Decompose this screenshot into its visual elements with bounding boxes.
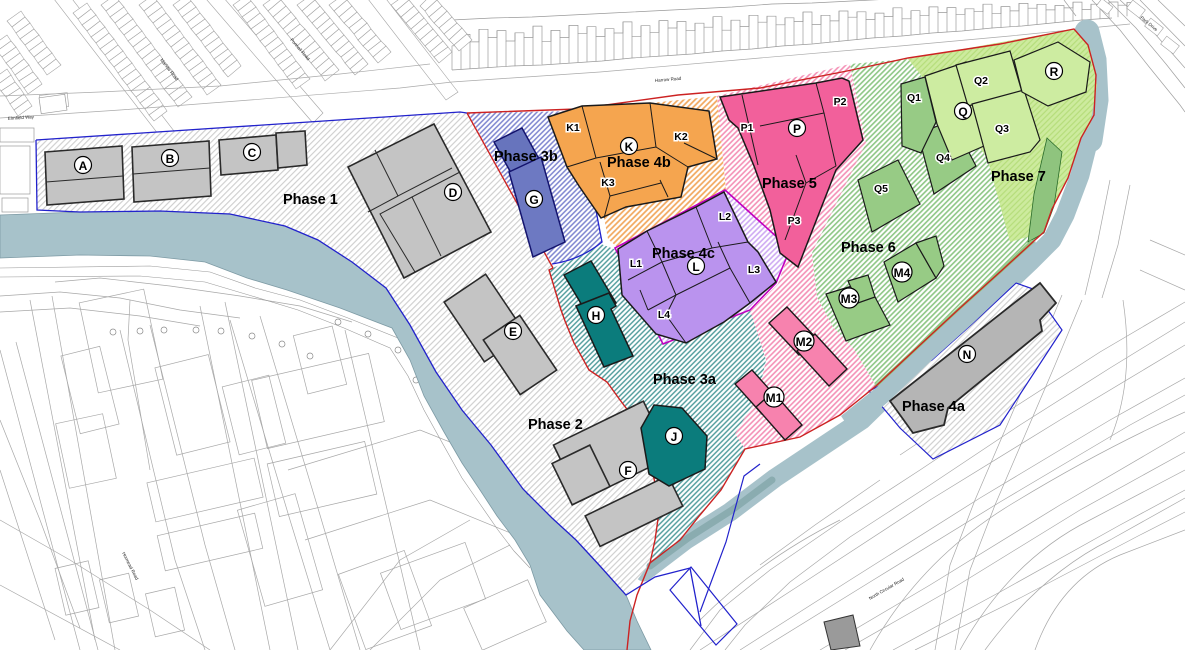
svg-text:J: J	[671, 430, 678, 444]
svg-text:Q2: Q2	[974, 75, 988, 87]
svg-text:F: F	[624, 464, 631, 478]
svg-text:P1: P1	[741, 122, 754, 134]
svg-text:G: G	[529, 193, 538, 207]
svg-text:Phase 2: Phase 2	[528, 417, 583, 433]
svg-text:M4: M4	[894, 266, 911, 280]
svg-text:Phase 4c: Phase 4c	[652, 246, 715, 262]
svg-text:P3: P3	[788, 215, 801, 227]
svg-text:D: D	[449, 186, 458, 200]
svg-text:K: K	[625, 140, 634, 154]
svg-text:Phase 5: Phase 5	[762, 176, 817, 192]
svg-text:C: C	[248, 146, 257, 160]
svg-text:Phase 3b: Phase 3b	[494, 149, 558, 165]
svg-text:K2: K2	[674, 131, 688, 143]
svg-text:H: H	[592, 309, 601, 323]
svg-text:L3: L3	[748, 264, 760, 276]
svg-text:Q1: Q1	[907, 92, 921, 104]
svg-text:L1: L1	[630, 258, 642, 270]
svg-text:Phase 1: Phase 1	[283, 192, 338, 208]
svg-text:Phase 3a: Phase 3a	[653, 372, 717, 388]
svg-text:R: R	[1050, 65, 1059, 79]
svg-text:L: L	[692, 260, 699, 274]
svg-text:Q3: Q3	[995, 123, 1009, 135]
svg-text:Phase 4a: Phase 4a	[902, 399, 966, 415]
svg-text:P: P	[793, 122, 801, 136]
svg-text:P2: P2	[834, 96, 847, 108]
svg-text:B: B	[166, 152, 175, 166]
svg-text:M2: M2	[796, 335, 813, 349]
svg-text:L4: L4	[658, 309, 670, 321]
svg-text:Phase 4b: Phase 4b	[607, 155, 671, 171]
svg-text:Q: Q	[958, 105, 967, 119]
svg-text:A: A	[79, 159, 88, 173]
svg-text:M3: M3	[841, 292, 858, 306]
svg-text:N: N	[963, 348, 972, 362]
svg-text:L2: L2	[719, 211, 731, 223]
svg-text:Q4: Q4	[936, 152, 950, 164]
svg-text:Phase 6: Phase 6	[841, 240, 896, 256]
svg-text:Q5: Q5	[874, 183, 888, 195]
svg-text:K1: K1	[566, 122, 580, 134]
svg-text:K3: K3	[601, 177, 615, 189]
svg-text:Phase 7: Phase 7	[991, 169, 1046, 185]
svg-text:M1: M1	[766, 391, 783, 405]
svg-text:E: E	[509, 325, 517, 339]
